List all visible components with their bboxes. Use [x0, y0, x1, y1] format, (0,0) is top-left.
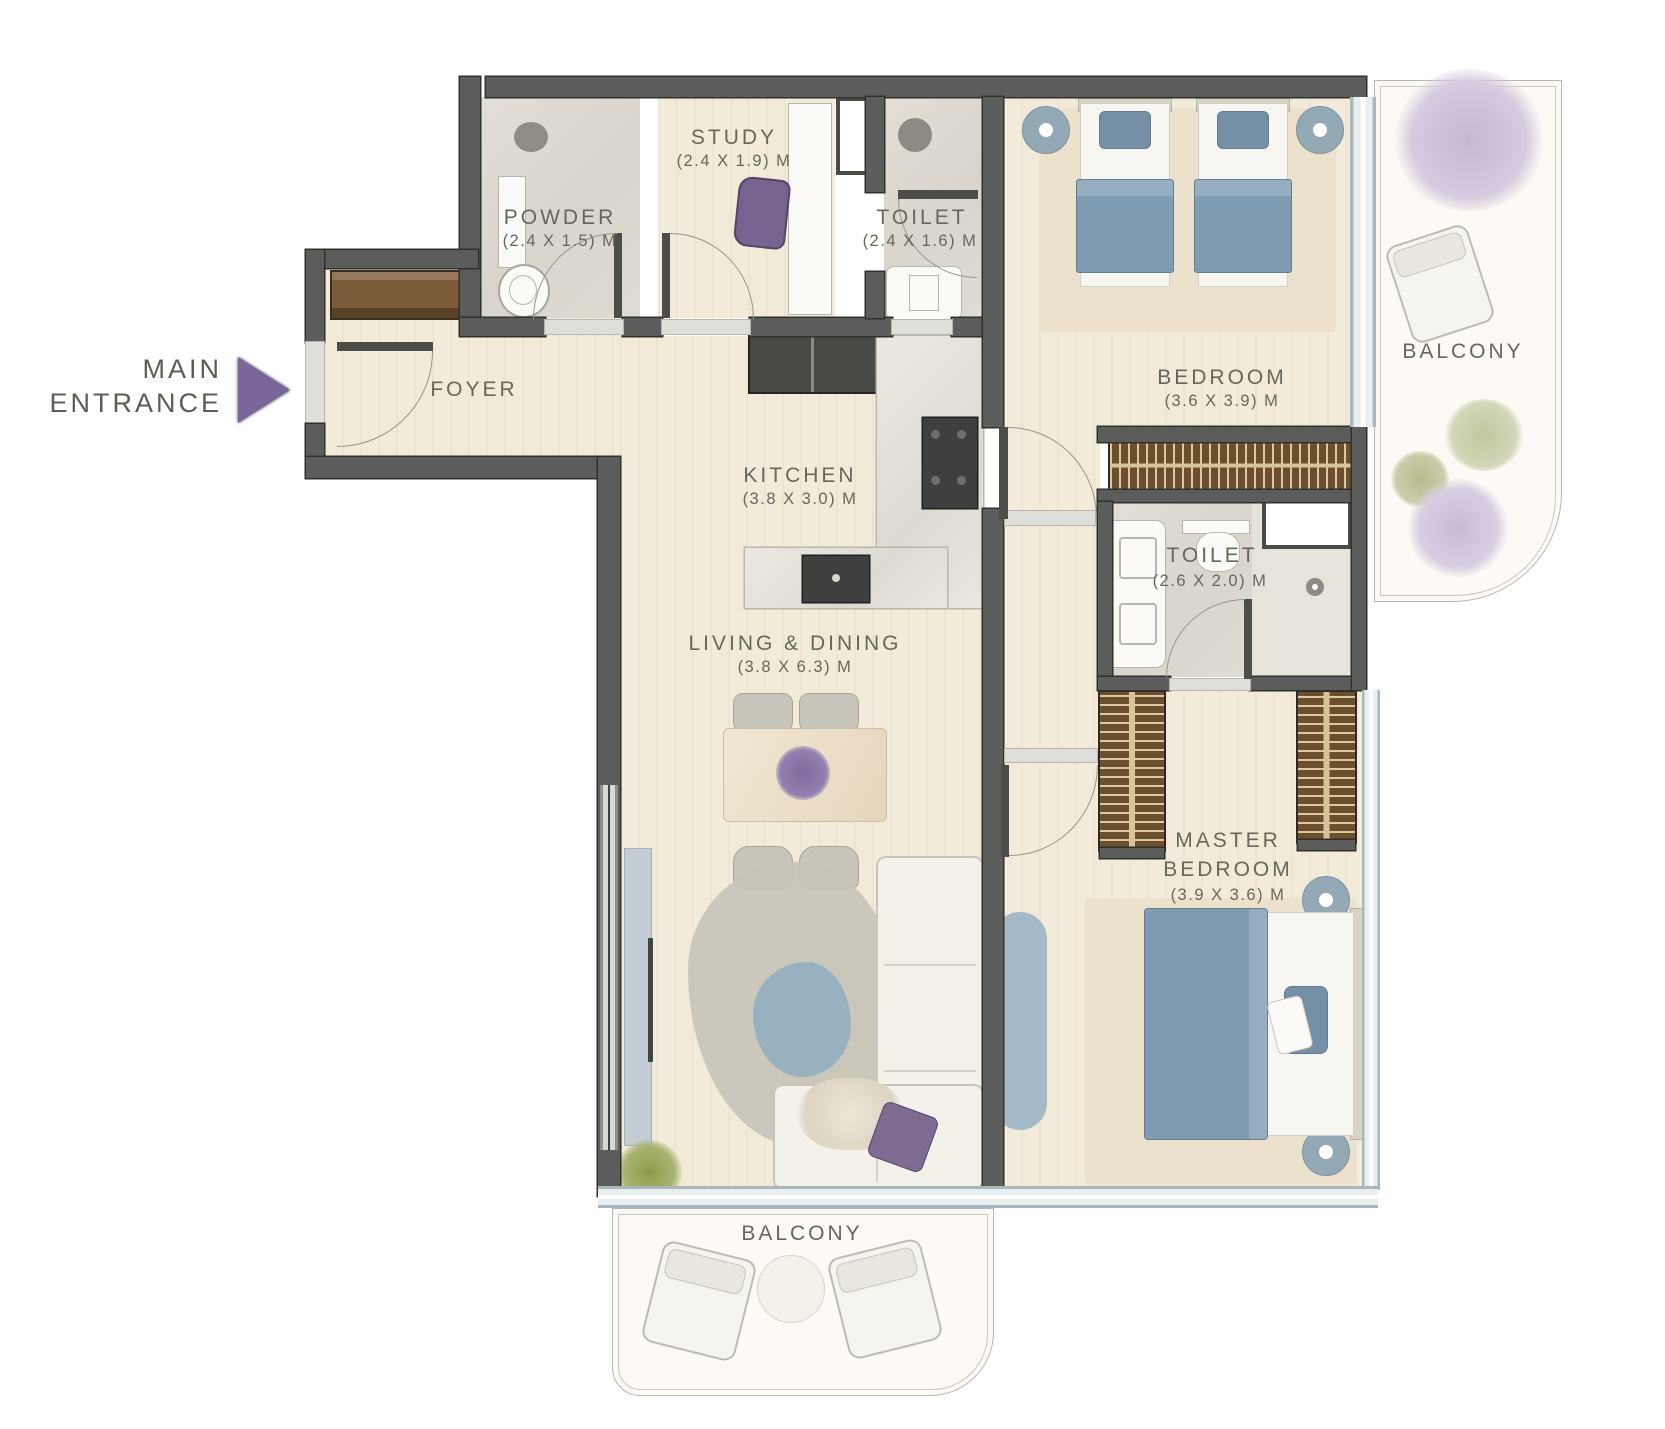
toilet-master-dims: (2.6 X 2.0) M — [1153, 572, 1268, 591]
toilet-master-label: TOILET — [1166, 544, 1257, 568]
main-entrance-label: MAIN ENTRANCE — [34, 352, 222, 420]
wall-right-mid — [1352, 427, 1366, 690]
foyer-cabinet-icon — [332, 272, 465, 318]
bedroom-dims: (3.6 X 3.9) M — [1165, 392, 1280, 411]
rug-accent-icon — [753, 962, 851, 1077]
sofa-seam — [884, 964, 976, 966]
blanket-icon — [1076, 179, 1174, 273]
living-dims: (3.8 X 6.3) M — [738, 658, 853, 677]
blanket-icon — [1194, 179, 1292, 273]
wall-foyer-top — [306, 250, 478, 268]
wall-row-bottom — [623, 318, 662, 336]
faucet-icon — [832, 574, 840, 582]
toilet-top-dims: (2.4 X 1.6) M — [863, 232, 978, 251]
toilet-top-label: TOILET — [876, 206, 967, 230]
toilet-top-wc-inner — [909, 275, 939, 311]
toilet-master-door-opening — [1170, 679, 1250, 690]
wall-toilet-master-bottom — [1250, 677, 1366, 690]
burner-icon — [931, 430, 940, 439]
bedroom-window-wall — [1350, 97, 1376, 427]
master-wardrobe-icon — [1298, 692, 1355, 842]
master-bed-icon — [1144, 908, 1364, 1138]
pillow-icon — [1217, 111, 1269, 149]
balcony-table-icon — [757, 1255, 825, 1323]
table-centerpiece-icon — [776, 746, 830, 800]
duct-shaft — [1262, 497, 1352, 549]
master-window-wall — [1362, 690, 1380, 1190]
bedroom-wardrobe-icon — [1110, 442, 1355, 490]
twin-bed-icon — [1078, 97, 1170, 289]
toilet-top-door-opening — [892, 320, 952, 334]
master-dims: (3.9 X 3.6) M — [1171, 886, 1286, 905]
nightstand-icon — [1296, 106, 1344, 154]
twin-bed-icon — [1196, 97, 1288, 289]
plant-icon — [1393, 69, 1545, 211]
entrance-arrow-icon — [238, 357, 290, 423]
wall-toilet-master-left — [1098, 502, 1112, 690]
shower-head-dot — [1312, 584, 1318, 590]
foyer-label: FOYER — [430, 378, 517, 402]
powder-dims: (2.4 X 1.5) M — [503, 232, 618, 251]
main-entrance-line2: ENTRANCE — [34, 386, 222, 420]
master-vanity-icon — [1112, 520, 1166, 668]
living-label: LIVING & DINING — [688, 632, 901, 656]
sink-icon — [1119, 537, 1157, 579]
burner-icon — [957, 430, 966, 439]
burner-icon — [957, 476, 966, 485]
sofa-seam — [884, 1070, 976, 1072]
floor-plan: MAIN ENTRANCE FOYER POWDER (2.4 X 1.5) M… — [0, 0, 1665, 1429]
main-entrance-line1: MAIN — [34, 352, 222, 386]
blanket-icon — [1144, 908, 1268, 1140]
master-door-leaf — [1001, 765, 1009, 857]
master-label: MASTER BEDROOM — [1138, 826, 1318, 884]
study-chair-icon — [732, 175, 791, 250]
wall-toilet-master-bottom — [1098, 677, 1170, 690]
stove-icon — [923, 418, 977, 508]
toilet-top-basin-icon — [898, 118, 932, 152]
toilet-top-door-leaf — [898, 190, 978, 199]
wall-bedroom-left — [983, 97, 1003, 427]
powder-label: POWDER — [504, 206, 617, 230]
wall-toilet-master-top — [1098, 490, 1366, 502]
tv-icon — [648, 938, 653, 1062]
study-dims: (2.4 X 1.9) M — [677, 152, 792, 171]
shower-head-icon — [1306, 578, 1324, 596]
wall-toilet-top-left — [866, 272, 884, 318]
entrance-door-leaf — [337, 342, 433, 351]
study-label: STUDY — [691, 126, 777, 150]
wall-foyer-bottom — [306, 457, 620, 478]
study-desk-icon — [788, 103, 832, 315]
kitchen-label: KITCHEN — [743, 464, 856, 488]
balcony-bottom-label: BALCONY — [741, 1222, 862, 1246]
wall-row-bottom — [460, 318, 545, 336]
plant-icon — [1445, 399, 1523, 471]
study-door-opening — [662, 320, 750, 334]
wall-top — [486, 77, 1366, 97]
powder-basin-icon — [514, 122, 548, 152]
bedroom-door-leaf — [999, 427, 1008, 519]
entrance-opening — [306, 342, 324, 424]
plant-icon — [1407, 479, 1509, 577]
pillow-icon — [1099, 111, 1151, 149]
balcony-right-label: BALCONY — [1402, 340, 1523, 364]
nightstand-icon — [1022, 106, 1070, 154]
kitchen-upper-cabinets-icon — [750, 336, 878, 392]
wall-foyer-left-upper — [306, 250, 324, 342]
bedroom-label: BEDROOM — [1157, 366, 1287, 390]
toilet-top-wc-icon — [886, 266, 962, 320]
bottom-window-wall — [598, 1186, 1378, 1208]
powder-wc-inner — [509, 275, 537, 305]
living-window — [600, 785, 618, 1150]
powder-door-opening — [545, 320, 623, 334]
wall-toilet-top-left — [866, 97, 884, 192]
wall-living-right — [983, 509, 1003, 1196]
sink-icon — [803, 556, 869, 602]
kitchen-dims: (3.8 X 3.0) M — [743, 490, 858, 509]
study-door-leaf — [662, 233, 670, 318]
sink-icon — [1119, 603, 1157, 645]
burner-icon — [931, 476, 940, 485]
toilet-master-door-leaf — [1244, 599, 1252, 679]
wall-row-bottom — [750, 318, 892, 336]
master-door-opening — [1005, 749, 1097, 762]
wall-wardrobe-bar — [1098, 427, 1366, 442]
wall-powder-left — [460, 77, 480, 318]
